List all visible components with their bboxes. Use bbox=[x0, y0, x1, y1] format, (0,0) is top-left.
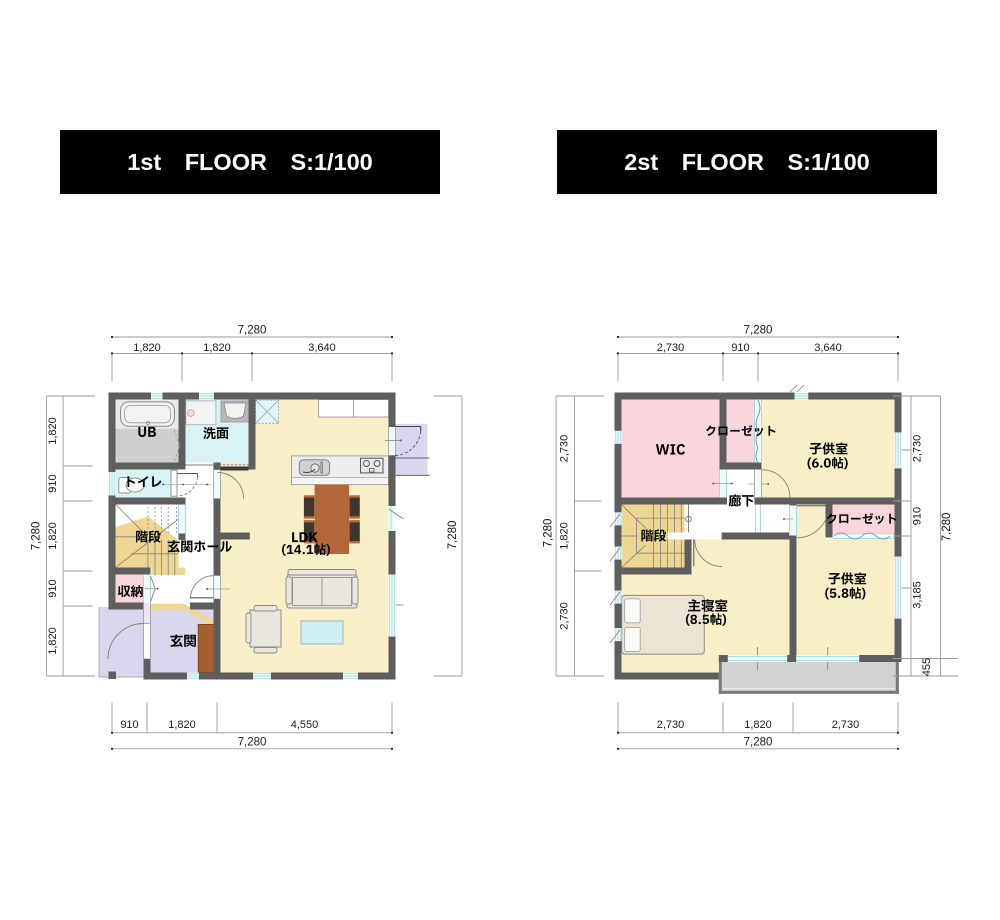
svg-text:1,820: 1,820 bbox=[168, 719, 196, 731]
svg-text:1,820: 1,820 bbox=[203, 342, 231, 354]
svg-text:2,730: 2,730 bbox=[832, 719, 860, 731]
svg-text:2,730: 2,730 bbox=[657, 342, 685, 354]
svg-text:910: 910 bbox=[912, 507, 924, 525]
svg-text:1st FLOOR S:1/100: 1st FLOOR S:1/100 bbox=[127, 149, 373, 175]
svg-text:7,280: 7,280 bbox=[744, 737, 773, 749]
svg-text:910: 910 bbox=[47, 579, 59, 597]
svg-text:7,280: 7,280 bbox=[744, 325, 773, 337]
svg-text:1,820: 1,820 bbox=[559, 522, 571, 550]
svg-text:1,820: 1,820 bbox=[47, 417, 59, 445]
svg-text:910: 910 bbox=[120, 719, 138, 731]
svg-text:2st FLOOR S:1/100: 2st FLOOR S:1/100 bbox=[624, 149, 870, 175]
svg-text:1,820: 1,820 bbox=[47, 627, 59, 655]
svg-text:7,280: 7,280 bbox=[30, 522, 42, 551]
svg-text:1,820: 1,820 bbox=[133, 342, 161, 354]
svg-text:2,730: 2,730 bbox=[912, 435, 924, 463]
svg-text:7,280: 7,280 bbox=[238, 325, 267, 337]
svg-text:910: 910 bbox=[731, 342, 749, 354]
svg-text:3,640: 3,640 bbox=[814, 342, 842, 354]
svg-text:3,640: 3,640 bbox=[308, 342, 336, 354]
svg-text:2,730: 2,730 bbox=[559, 602, 571, 630]
svg-text:2,730: 2,730 bbox=[657, 719, 685, 731]
svg-text:1,820: 1,820 bbox=[47, 522, 59, 550]
svg-text:7,280: 7,280 bbox=[941, 513, 953, 542]
svg-text:7,280: 7,280 bbox=[543, 519, 555, 548]
svg-text:4,550: 4,550 bbox=[291, 719, 319, 731]
svg-text:7,280: 7,280 bbox=[447, 521, 459, 550]
svg-text:7,280: 7,280 bbox=[238, 737, 267, 749]
svg-text:910: 910 bbox=[47, 474, 59, 492]
svg-text:2,730: 2,730 bbox=[559, 435, 571, 463]
svg-text:3,185: 3,185 bbox=[912, 581, 924, 609]
svg-text:455: 455 bbox=[921, 658, 933, 676]
svg-text:1,820: 1,820 bbox=[744, 719, 772, 731]
